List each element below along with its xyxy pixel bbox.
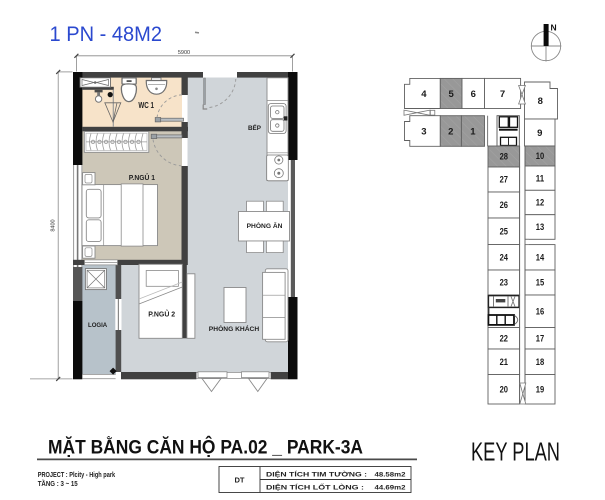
- svg-text:12: 12: [536, 198, 544, 208]
- svg-text:18: 18: [536, 357, 544, 367]
- svg-text:P.NGỦ 2: P.NGỦ 2: [148, 310, 175, 319]
- svg-text:7: 7: [500, 89, 505, 100]
- svg-text:11: 11: [536, 173, 544, 183]
- svg-text:20: 20: [500, 384, 508, 394]
- svg-text:PHÒNG KHÁCH: PHÒNG KHÁCH: [209, 324, 259, 333]
- svg-text:25: 25: [500, 226, 508, 236]
- svg-text:1: 1: [470, 127, 476, 138]
- svg-text:9: 9: [537, 128, 542, 139]
- svg-text:28: 28: [500, 152, 508, 162]
- svg-text:44.69m2: 44.69m2: [375, 484, 406, 491]
- svg-text:WC 1: WC 1: [138, 101, 154, 110]
- svg-text:2: 2: [448, 127, 453, 138]
- svg-text:8: 8: [538, 96, 544, 107]
- svg-text:TẦNG : 3 ~ 15: TẦNG : 3 ~ 15: [38, 478, 78, 488]
- svg-text:1 PN - 48M2: 1 PN - 48M2: [50, 22, 163, 46]
- svg-text:48.58m2: 48.58m2: [375, 472, 406, 479]
- svg-text:8400: 8400: [51, 219, 57, 231]
- svg-text:13: 13: [536, 222, 544, 232]
- svg-text:26: 26: [500, 200, 508, 210]
- svg-text:PHÒNG ĂN: PHÒNG ĂN: [247, 221, 283, 230]
- svg-text:24: 24: [500, 252, 508, 262]
- svg-text:3: 3: [421, 126, 426, 137]
- svg-text:MẶT BẰNG CĂN HỘ PA.02 _ PARK-3: MẶT BẰNG CĂN HỘ PA.02 _ PARK-3A: [48, 435, 363, 459]
- svg-text:23: 23: [500, 278, 508, 288]
- svg-text:19: 19: [536, 384, 544, 394]
- svg-text:5: 5: [448, 89, 454, 100]
- svg-text:PROJECT : Plcity - High park: PROJECT : Plcity - High park: [38, 470, 116, 479]
- svg-text:DT: DT: [235, 476, 245, 485]
- svg-text:15: 15: [536, 278, 544, 288]
- svg-text:P.NGỦ 1: P.NGỦ 1: [129, 173, 155, 182]
- svg-text:DIỆN TÍCH TIM TƯỜNG :: DIỆN TÍCH TIM TƯỜNG :: [266, 470, 367, 479]
- svg-text:6: 6: [471, 89, 476, 100]
- svg-text:5900: 5900: [178, 50, 190, 56]
- svg-text:21: 21: [500, 357, 508, 367]
- svg-text:16: 16: [536, 306, 544, 316]
- svg-text:LOGIA: LOGIA: [88, 322, 108, 329]
- svg-text:10: 10: [536, 151, 544, 161]
- svg-text:4: 4: [421, 89, 427, 100]
- svg-text:KEY PLAN: KEY PLAN: [471, 437, 560, 467]
- svg-text:27: 27: [500, 175, 508, 185]
- svg-text:22: 22: [500, 333, 508, 343]
- svg-text:N: N: [551, 23, 557, 33]
- svg-text:17: 17: [536, 333, 544, 343]
- svg-text:14: 14: [536, 253, 544, 263]
